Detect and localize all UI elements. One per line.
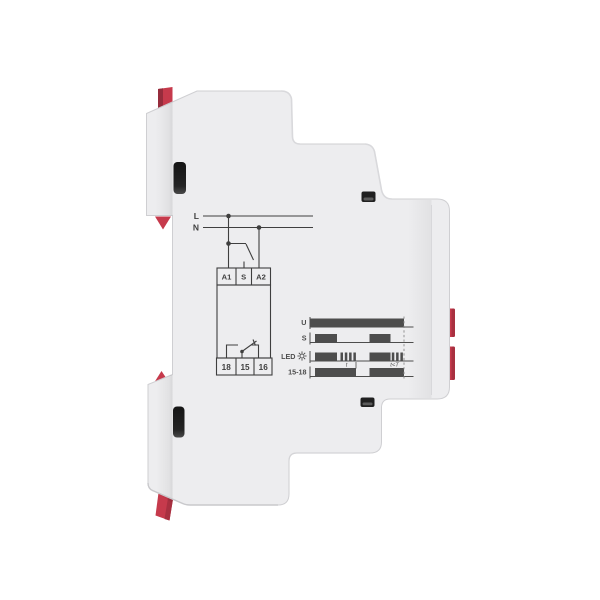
- terminal-label-a2: A2: [256, 273, 266, 282]
- timing-bar: [353, 353, 356, 362]
- timing-row-label: U: [301, 318, 306, 327]
- timing-bar: [349, 353, 352, 362]
- supply-label-n: N: [193, 223, 199, 233]
- timing-bar: [370, 368, 405, 377]
- timing-row-label: 15-18: [288, 368, 306, 377]
- terminal-label-15: 15: [240, 363, 250, 372]
- terminal-label-s: S: [241, 273, 246, 282]
- vent-slot-lower: [173, 407, 185, 438]
- terminal-label-18: 18: [222, 363, 232, 372]
- timing-bar: [315, 353, 337, 362]
- supply-label-l: L: [194, 211, 199, 221]
- timing-bar: [315, 368, 356, 377]
- vent-slot-bottom-small: [361, 398, 375, 408]
- terminal-label-16: 16: [259, 363, 269, 372]
- product-image: L N A1 S A2 18 15 16 USLED15-18tt<T: [0, 0, 600, 600]
- timing-bar: [345, 353, 348, 362]
- upper-red-latch: [155, 217, 171, 230]
- timing-bar: [341, 353, 344, 362]
- timing-row-label: S: [302, 334, 307, 343]
- timing-bar: [370, 334, 391, 343]
- device-body: [147, 91, 450, 505]
- timing-bar: [370, 353, 391, 362]
- timing-bar: [392, 353, 395, 362]
- timing-row-label: LED: [281, 352, 295, 361]
- vent-slot-upper: [174, 162, 187, 194]
- din-relay-illustration: L N A1 S A2 18 15 16 USLED15-18tt<T: [0, 0, 600, 600]
- timing-bar: [315, 334, 337, 343]
- timing-bar: [396, 353, 399, 362]
- vent-slot-top-small: [362, 192, 376, 203]
- timing-annotation: t<T: [390, 363, 399, 369]
- timing-bar: [400, 353, 403, 362]
- terminal-label-a1: A1: [222, 273, 232, 282]
- timing-bar: [310, 319, 404, 328]
